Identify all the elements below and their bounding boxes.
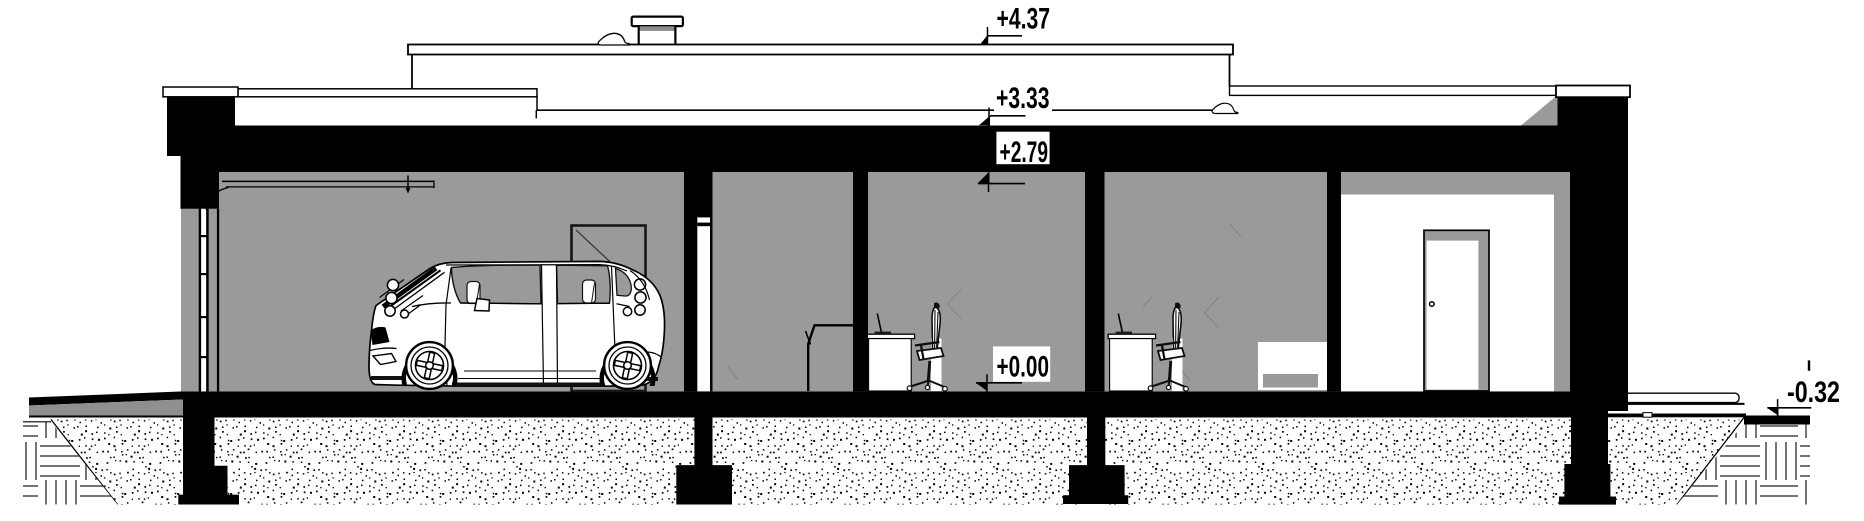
svg-text:+0.00: +0.00 [997,350,1050,383]
svg-text:+3.33: +3.33 [996,82,1050,115]
svg-text:-0.32: -0.32 [1787,376,1840,409]
svg-text:+2.79: +2.79 [1000,136,1049,169]
svg-text:+4.37: +4.37 [997,3,1051,36]
